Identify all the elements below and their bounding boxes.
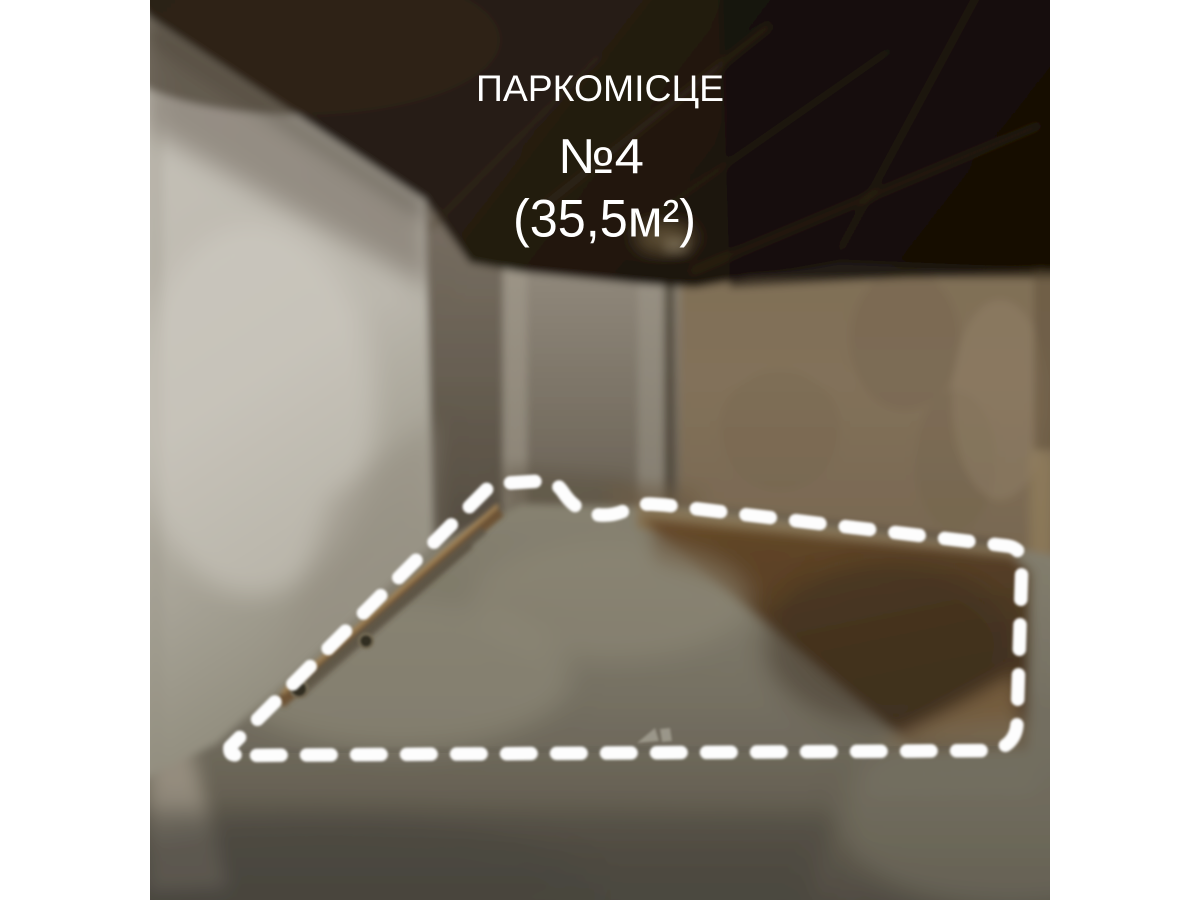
svg-text:№4: №4 <box>558 130 644 184</box>
svg-text:ПАРКОМІСЦЕ: ПАРКОМІСЦЕ <box>476 68 724 109</box>
svg-text:(35,5м²): (35,5м²) <box>513 190 696 249</box>
